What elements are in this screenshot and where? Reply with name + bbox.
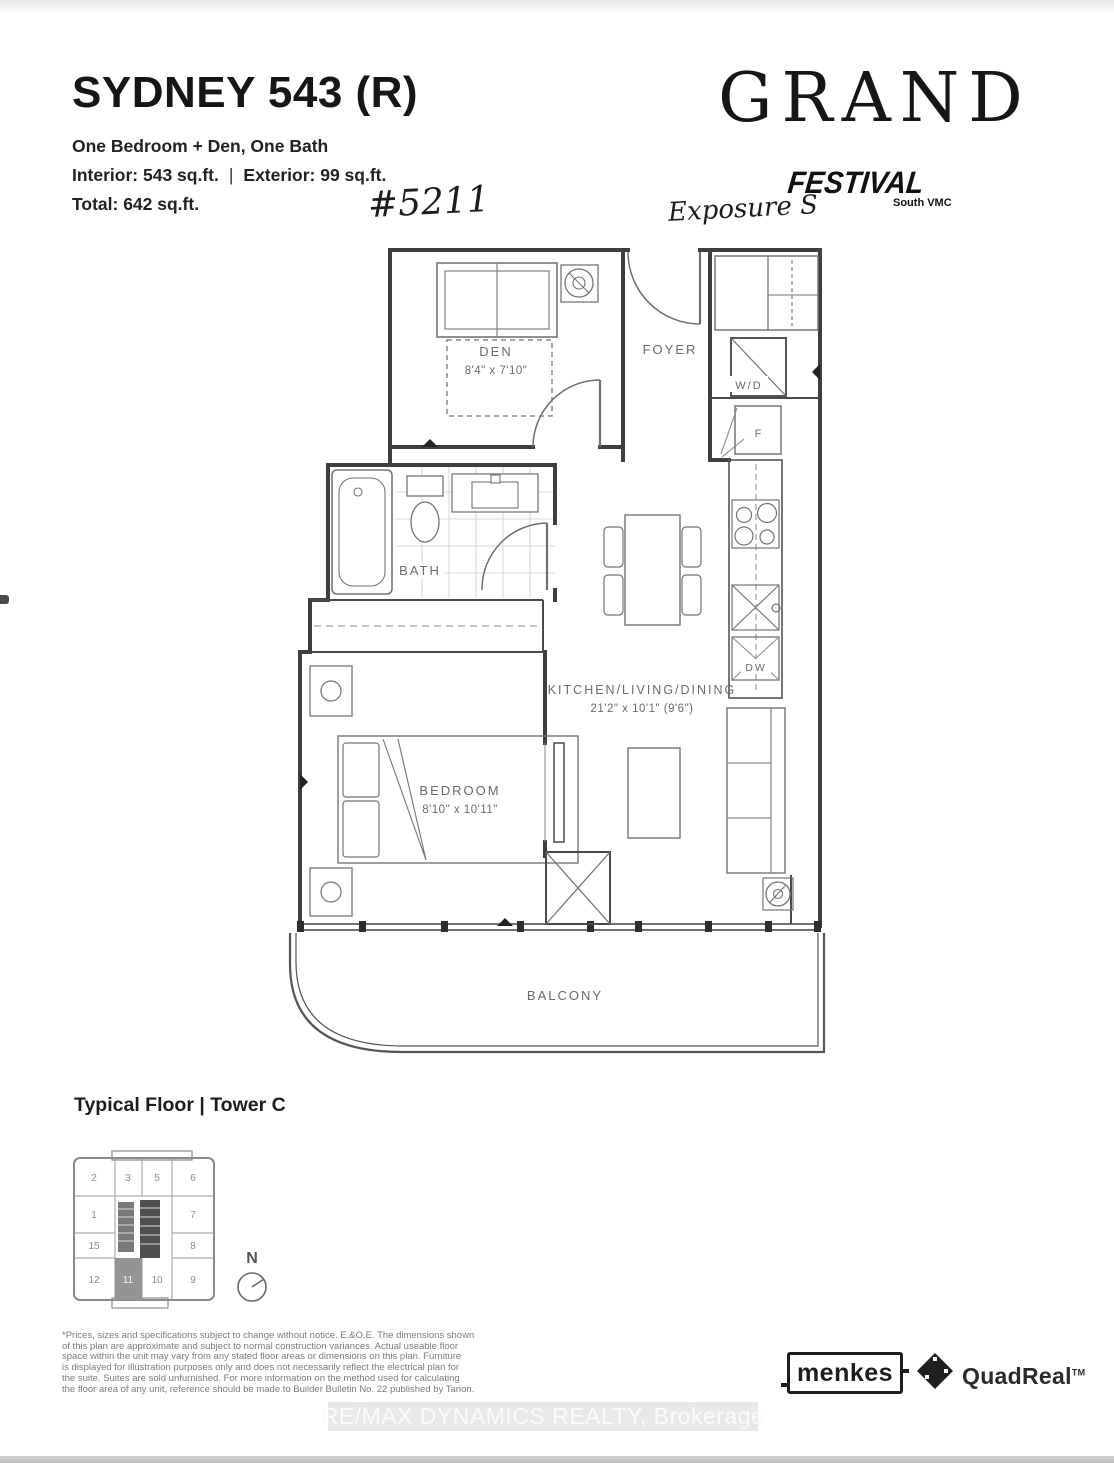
pillow-2 (343, 801, 379, 857)
bath-vanity (452, 474, 538, 512)
kitchen-living-dining-dims: 21'2" x 10'1" (9'6") (591, 703, 694, 715)
total-area: Total: 642 sq.ft. (72, 190, 418, 219)
fridge-label: F (755, 428, 764, 440)
bath-door-swing (482, 523, 547, 590)
keyplan-drawing: 2 3 5 6 1 7 15 8 12 11 10 9 N (68, 1145, 280, 1313)
unit-9: 9 (190, 1275, 196, 1286)
den-furniture (437, 263, 598, 416)
festival-tagline: South VMC (893, 197, 952, 209)
plan-name: SYDNEY 543 (R) (72, 68, 418, 118)
hvac-unit (763, 878, 793, 910)
quadreal-logo-text: QuadRealTM (962, 1363, 1085, 1390)
room-labels: DEN 8'4" x 7'10" FOYER BATH KITCHEN/LIVI… (396, 342, 736, 1003)
coffee-table (628, 748, 680, 838)
grand-logo: GRAND (700, 62, 1050, 137)
compass: N (238, 1250, 266, 1301)
kitchen-living-dining-label: KITCHEN/LIVING/DINING (548, 683, 737, 697)
kitchen-counter: DW (722, 439, 782, 698)
bedroom-sliding-door (545, 743, 564, 842)
foyer-closet (715, 256, 818, 330)
plan-stats: One Bedroom + Den, One Bath Interior: 54… (72, 132, 418, 219)
bedroom-dims: 8'10" x 10'11" (422, 804, 498, 816)
bedroom-label: BEDROOM (419, 783, 500, 798)
plan-subtitle: One Bedroom + Den, One Bath (72, 132, 418, 161)
den-label: DEN (479, 344, 512, 359)
scan-artifact (0, 595, 9, 604)
unit-6: 6 (190, 1173, 196, 1184)
area-separator: | (219, 165, 244, 185)
handwritten-exposure: Exposure S (667, 190, 818, 228)
menkes-tick-right (902, 1369, 909, 1373)
scan-bottom-edge (0, 1456, 1114, 1463)
brand-block: GRAND (700, 62, 1050, 137)
balcony-label: BALCONY (527, 988, 603, 1003)
keyplan-core (118, 1200, 160, 1258)
entry-door-swing (628, 252, 700, 324)
scan-top-shade (0, 0, 1114, 16)
handwritten-unit-number: #5211 (367, 179, 491, 226)
floorplan-drawing: W/D F DW (280, 238, 840, 1070)
washer-dryer: W/D (730, 338, 786, 396)
dishwasher-label: DW (745, 662, 767, 674)
toilet (407, 476, 443, 542)
floorplan-sheet: SYDNEY 543 (R) One Bedroom + Den, One Ba… (0, 0, 1114, 1480)
brokerage-watermark-text: RE/MAX DYNAMICS REALTY, Brokerage (322, 1403, 765, 1430)
compass-north-label: N (246, 1250, 258, 1267)
nightstand-top (310, 666, 352, 716)
interior-area: Interior: 543 sq.ft. (72, 165, 219, 185)
compass-needle (252, 1279, 264, 1287)
keyplan-title: Typical Floor | Tower C (74, 1094, 286, 1117)
dining-set (604, 515, 701, 625)
unit-5: 5 (154, 1173, 160, 1184)
dishwasher: DW (732, 637, 779, 680)
den-dims: 8'4" x 7'10" (465, 365, 528, 377)
unit-8: 8 (190, 1241, 196, 1252)
quadreal-name: QuadReal (962, 1363, 1072, 1389)
quadreal-tm: TM (1072, 1367, 1086, 1377)
quadreal-diamond-icon (916, 1352, 954, 1390)
bath-label-group: BATH (396, 562, 444, 578)
disclaimer-line: the floor area of any unit, reference sh… (62, 1385, 572, 1396)
unit-2: 2 (91, 1173, 97, 1184)
bed (338, 736, 578, 863)
quadreal-logo: QuadRealTM (916, 1352, 1085, 1390)
unit-3: 3 (125, 1173, 131, 1184)
doors (482, 252, 700, 590)
bath-label: BATH (399, 563, 441, 578)
menkes-logo: menkes (787, 1352, 903, 1394)
pillow-1 (343, 743, 379, 797)
washer-dryer-label: W/D (735, 380, 762, 392)
unit-12: 12 (88, 1275, 100, 1286)
unit-11-highlighted: 11 (123, 1275, 134, 1286)
unit-10: 10 (151, 1275, 163, 1286)
kitchen-sink (732, 585, 780, 630)
den-door-swing (533, 380, 600, 447)
living-furniture (628, 708, 793, 910)
fridge: F (721, 406, 781, 454)
nightstand-bottom (310, 868, 352, 916)
blanket-fold (383, 739, 426, 860)
sofa (727, 708, 785, 873)
window-wall (297, 921, 821, 932)
disclaimer-line: the suite. Suites are sold unfurnished. … (62, 1374, 572, 1385)
menkes-tick-left (781, 1383, 788, 1387)
menkes-logo-text: menkes (797, 1359, 893, 1388)
brokerage-watermark: RE/MAX DYNAMICS REALTY, Brokerage (328, 1402, 758, 1431)
disclaimer: *Prices, sizes and specifications subjec… (62, 1331, 572, 1395)
dining-table (625, 515, 680, 625)
unit-1: 1 (91, 1210, 97, 1221)
foyer-label: FOYER (643, 342, 698, 357)
unit-7: 7 (190, 1210, 196, 1221)
title-block: SYDNEY 543 (R) One Bedroom + Den, One Ba… (72, 68, 418, 219)
exterior-area: Exterior: 99 sq.ft. (243, 165, 386, 185)
unit-15: 15 (88, 1241, 100, 1252)
